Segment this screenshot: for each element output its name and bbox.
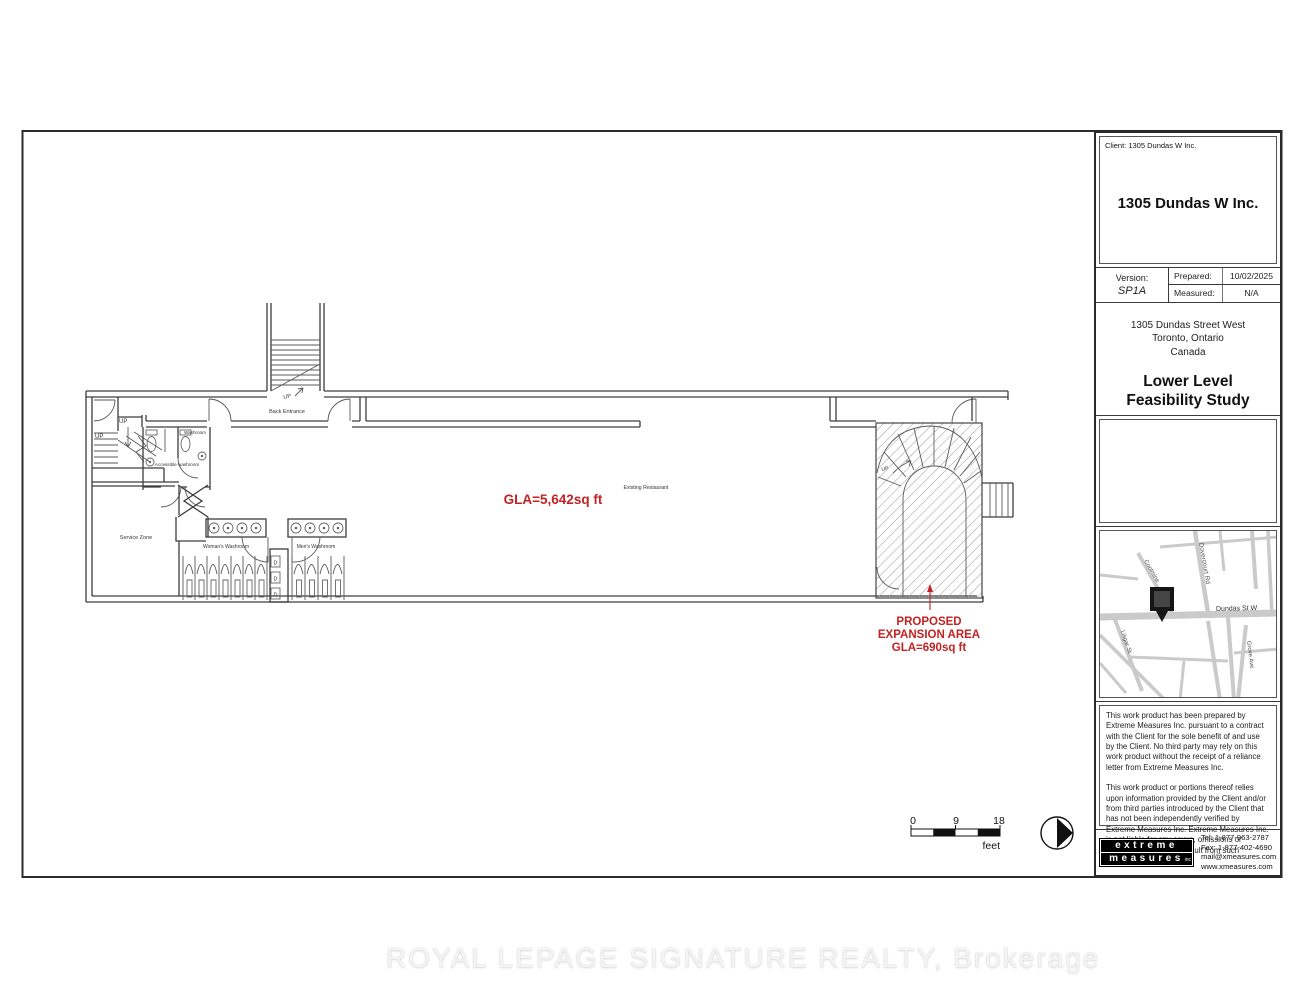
mens-washroom-label: Men's Washroom: [297, 544, 336, 550]
logo-word-2: measuresinc: [1101, 853, 1192, 865]
expansion-area: UP: [830, 397, 1013, 598]
washroom-cluster: Washroom Accessible washroom: [143, 427, 210, 507]
version-panel: Version: SP1A Prepared: 10/02/2025 Measu…: [1096, 268, 1280, 303]
address-line1: 1305 Dundas Street West: [1131, 319, 1245, 333]
drain-label-1: D: [274, 561, 278, 567]
drain-label-2: D: [274, 577, 278, 583]
up-label-corridor: UP: [119, 419, 127, 425]
logo-suffix: inc: [1185, 854, 1191, 866]
proposed-line1: PROPOSED: [896, 616, 961, 628]
title-block: Client: 1305 Dundas W Inc. 1305 Dundas W…: [1094, 131, 1282, 877]
scale-bar: 0 9 18 feet: [910, 815, 1005, 852]
location-map: Dovercourt Rd Coolmine Lisgar St Grove A…: [1099, 530, 1277, 697]
disclaimer-panel: This work product has been prepared by E…: [1096, 702, 1280, 830]
brand-panel: extreme measuresinc Tel: 1-877-963-2787 …: [1096, 830, 1280, 875]
map-panel: Dovercourt Rd Coolmine Lisgar St Grove A…: [1096, 527, 1280, 701]
blank-panel: [1096, 416, 1280, 527]
extreme-measures-logo: extreme measuresinc: [1099, 838, 1194, 867]
map-street-lisgar: Lisgar St: [1119, 630, 1132, 655]
corridor-walls: [146, 397, 640, 427]
stair-tower: UP: [267, 303, 324, 401]
scale-tick-18: 18: [993, 815, 1005, 827]
project-panel: 1305 Dundas Street West Toronto, Ontario…: [1096, 303, 1280, 416]
washroom-label: Washroom: [184, 430, 206, 435]
client-name: 1305 Dundas W Inc.: [1100, 195, 1276, 212]
study-title-line2: Feasibility Study: [1126, 391, 1249, 410]
back-entrance-label: Back Entrance: [269, 409, 305, 415]
scale-tick-9: 9: [953, 815, 959, 827]
measured-value: N/A: [1223, 288, 1280, 298]
accessible-washroom-label: Accessible washroom: [155, 462, 200, 467]
measured-label: Measured:: [1169, 285, 1223, 301]
brokerage-watermark: ROYAL LEPAGE SIGNATURE REALTY, Brokerage: [386, 942, 1100, 974]
contact-block: Tel: 1-877-963-2787 Fax: 1-877-402-4690 …: [1201, 833, 1276, 872]
map-street-dundas: Dundas St W: [1216, 605, 1258, 613]
version-label: Version:: [1116, 273, 1149, 283]
contact-web: www.xmeasures.com: [1201, 862, 1276, 872]
drain-label-3: D: [274, 593, 278, 599]
north-arrow-icon: [1041, 817, 1073, 849]
womens-washroom-label: Woman's Washroom: [203, 544, 249, 550]
up-label-tower: UP: [283, 393, 292, 401]
prepared-label: Prepared:: [1169, 268, 1223, 284]
existing-restaurant-label: Existing Restaurant: [624, 485, 670, 491]
proposed-line3: GLA=690sq ft: [892, 642, 967, 654]
scale-unit-label: feet: [982, 840, 1000, 852]
map-svg: Dovercourt Rd Coolmine Lisgar St Grove A…: [1100, 531, 1277, 697]
gla-main-label: GLA=5,642sq ft: [504, 492, 603, 507]
contact-fax: Fax: 1-877-402-4690: [1201, 843, 1276, 853]
disclaimer-box: This work product has been prepared by E…: [1099, 705, 1277, 826]
logo-word-1: extreme: [1101, 840, 1192, 852]
disclaimer-paragraph-1: This work product has been prepared by E…: [1106, 711, 1270, 773]
study-title-line1: Lower Level: [1126, 372, 1249, 391]
address-line3: Canada: [1170, 346, 1205, 360]
map-street-grove: Grove Ave: [1245, 641, 1254, 670]
client-line: Client: 1305 Dundas W Inc.: [1105, 141, 1196, 150]
up-label-left-stair: UP: [95, 434, 103, 440]
version-cell: Version: SP1A: [1096, 268, 1169, 302]
sheet-border: [23, 131, 1282, 877]
blank-panel-box: [1099, 419, 1277, 523]
left-stairs: UP UP: [92, 397, 179, 486]
contact-tel: Tel: 1-877-963-2787: [1201, 833, 1276, 843]
address-line2: Toronto, Ontario: [1152, 332, 1224, 346]
contact-email: mail@xmeasures.com: [1201, 852, 1276, 862]
version-value: SP1A: [1118, 285, 1146, 297]
prepared-row: Prepared: 10/02/2025: [1169, 268, 1280, 285]
prepared-value: 10/02/2025: [1223, 271, 1280, 281]
service-zone-label: Service Zone: [120, 535, 152, 541]
client-panel-box: Client: 1305 Dundas W Inc. 1305 Dundas W…: [1099, 136, 1277, 264]
proposed-line2: EXPANSION AREA: [878, 629, 980, 641]
client-panel: Client: 1305 Dundas W Inc. 1305 Dundas W…: [1096, 133, 1280, 268]
measured-row: Measured: N/A: [1169, 285, 1280, 301]
